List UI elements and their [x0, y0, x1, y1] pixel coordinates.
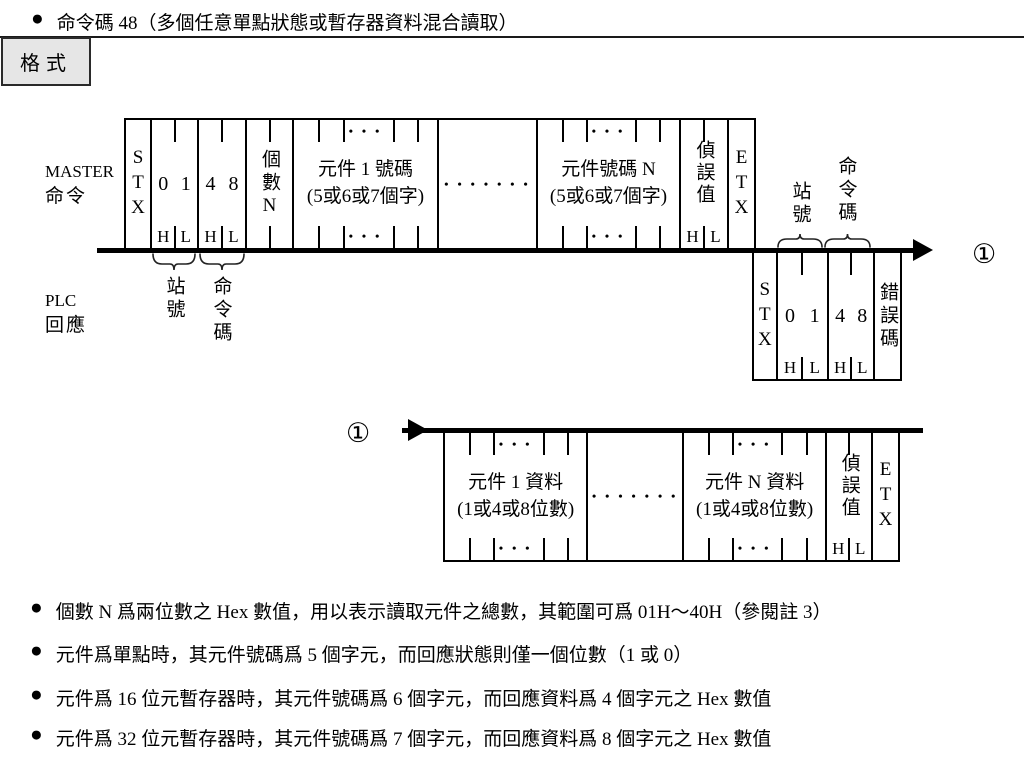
master-gap-cell: • • • • • • •: [439, 120, 538, 248]
ellipsis-dots: • • •: [294, 124, 437, 139]
cmd-hi: 4: [206, 173, 216, 196]
error-code-text: 錯誤碼: [878, 282, 897, 351]
continuation-marker-2: ①: [346, 420, 370, 447]
cmdcode-digits: 4 8: [199, 173, 245, 196]
station-hi: 0: [785, 305, 795, 328]
data-elementN-label: 元件 N 資料 (1或4或8位數): [696, 470, 813, 523]
l-label: L: [222, 227, 245, 247]
ellipsis-dots: • • •: [445, 541, 586, 556]
master-elementN-cell: • • • • • • 元件號碼 N (5或6或7個字): [538, 120, 681, 248]
response-data-frame: • • • • • • 元件 1 資料 (1或4或8位數) • • • • • …: [443, 433, 900, 562]
response-error-cell: 錯誤碼: [875, 253, 902, 379]
element1-title: 元件 1 號碼: [307, 157, 424, 184]
command-code-text: 命令碼: [837, 156, 856, 225]
page-title-text: 命令碼 48（多個任意單點狀態或暫存器資料混合讀取）: [57, 8, 518, 35]
tick-mark: [269, 226, 271, 248]
tick-mark: [801, 253, 803, 275]
command-code-label: 命令碼: [210, 276, 232, 345]
page-title: ● 命令碼 48（多個任意單點狀態或暫存器資料混合讀取）: [31, 8, 517, 35]
underbrace-icon: [152, 252, 196, 272]
ellipsis-dots: • • •: [445, 437, 586, 452]
bullet-icon: ●: [30, 724, 43, 745]
l-label: L: [802, 358, 827, 378]
note-row: ● 元件爲 16 位元暫存器時，其元件號碼爲 6 個字元，而回應資料爲 4 個字…: [30, 684, 771, 711]
command-label: 命令: [45, 184, 114, 210]
arrow-right-icon: [913, 239, 933, 261]
ellipsis-dots: • • •: [538, 229, 679, 244]
response-cmdcode-cell: 4 8 H L: [829, 253, 875, 379]
station-number-text: 站號: [791, 181, 810, 227]
data-element1-title: 元件 1 資料: [457, 470, 574, 497]
station-lo: 1: [810, 305, 820, 328]
master-element1-cell: • • • • • • 元件 1 號碼 (5或6或7個字): [294, 120, 439, 248]
format-tab: 格式: [1, 37, 91, 86]
note-row: ● 元件爲 32 位元暫存器時，其元件號碼爲 7 個字元，而回應資料爲 8 個字…: [30, 724, 771, 751]
cmd-hi: 4: [835, 305, 845, 328]
ellipsis-dots: • • •: [684, 437, 825, 452]
tick-mark: [221, 120, 223, 142]
response-station-cell: 0 1 H L: [778, 253, 829, 379]
ellipsis-dots: • • •: [684, 541, 825, 556]
note-row: ● 元件爲單點時，其元件號碼爲 5 個字元，而回應狀態則僅一個位數（1 或 0）: [30, 640, 692, 667]
bullet-icon: ●: [30, 597, 43, 618]
format-tab-label: 格式: [20, 47, 72, 76]
data-element1-label: 元件 1 資料 (1或4或8位數): [457, 470, 574, 523]
continuation-dots: • • • • • • •: [444, 177, 530, 192]
section-divider: [0, 36, 1024, 38]
stx-text: STX: [755, 279, 774, 354]
hl-row: H L: [681, 227, 727, 247]
data-element1-cell: • • • • • • 元件 1 資料 (1或4或8位數): [445, 433, 588, 560]
data-elementN-cell: • • • • • • 元件 N 資料 (1或4或8位數): [684, 433, 827, 560]
note-row: ● 個數 N 爲兩位數之 Hex 數值，用以表示讀取元件之總數，其範圍可爲 01…: [30, 597, 832, 624]
hl-row: H L: [827, 539, 871, 559]
bullet-icon: ●: [31, 8, 44, 29]
plc-response-label: PLC 回應: [45, 290, 87, 339]
plc-label: PLC: [45, 290, 87, 313]
h-label: H: [827, 539, 849, 559]
station-number-label: 站號: [789, 181, 811, 227]
master-etx-cell: ETX: [729, 120, 756, 248]
master-command-label: MASTER 命令: [45, 161, 114, 210]
response-stx-cell: STX: [754, 253, 778, 379]
cmd-lo: 8: [229, 173, 239, 196]
elementN-title: 元件號碼 N: [550, 157, 667, 184]
tick-mark: [848, 433, 850, 455]
master-stx-cell: STX: [126, 120, 152, 248]
overbrace-icon: [824, 233, 871, 249]
master-station-cell: 0 1 H L: [152, 120, 199, 248]
data-elementN-title: 元件 N 資料: [696, 470, 813, 497]
station-digits: 0 1: [152, 173, 197, 196]
underbrace-icon: [199, 252, 245, 272]
etx-text: ETX: [876, 459, 895, 534]
etx-text: ETX: [732, 147, 751, 222]
cmdcode-digits: 4 8: [829, 305, 873, 328]
data-elementN-subtitle: (1或4或8位數): [696, 497, 813, 524]
checksum-text: 偵誤值: [840, 453, 859, 519]
h-label: H: [152, 227, 175, 247]
continuation-dots: • • • • • • •: [592, 489, 678, 504]
ellipsis-dots: • • •: [294, 229, 437, 244]
hl-row: H L: [152, 227, 197, 247]
elementN-label: 元件號碼 N (5或6或7個字): [550, 157, 667, 210]
data-gap-cell: • • • • • • •: [588, 433, 684, 560]
checksum-text: 偵誤值: [695, 140, 714, 206]
l-label: L: [704, 227, 727, 247]
station-digits: 0 1: [778, 305, 827, 328]
data-etx-cell: ETX: [873, 433, 900, 560]
data-checksum-cell: 偵誤值 H L: [827, 433, 873, 560]
response-label: 回應: [45, 313, 87, 339]
note-text: 元件爲單點時，其元件號碼爲 5 個字元，而回應狀態則僅一個位數（1 或 0）: [56, 640, 693, 667]
station-hi: 0: [158, 173, 168, 196]
hl-row: H L: [199, 227, 245, 247]
hl-row: H L: [829, 358, 873, 378]
note-text: 元件爲 32 位元暫存器時，其元件號碼爲 7 個字元，而回應資料爲 8 個字元之…: [56, 724, 772, 751]
hl-row: H L: [778, 358, 827, 378]
elementN-subtitle: (5或6或7個字): [550, 184, 667, 211]
master-checksum-cell: 偵誤值 H L: [681, 120, 729, 248]
l-label: L: [849, 539, 871, 559]
plc-response-frame: STX 0 1 H L 4 8 H L: [752, 253, 902, 381]
h-label: H: [778, 358, 803, 378]
tick-mark: [703, 120, 705, 142]
master-command-frame: STX 0 1 H L 4 8 H L: [124, 118, 756, 248]
tick-mark: [269, 120, 271, 142]
page: ● 命令碼 48（多個任意單點狀態或暫存器資料混合讀取） 格式 MASTER 命…: [0, 0, 1024, 761]
count-text: 個數N: [260, 149, 279, 220]
ellipsis-dots: • • •: [538, 124, 679, 139]
arrow-right-icon: [408, 419, 428, 441]
station-lo: 1: [181, 173, 191, 196]
h-label: H: [829, 358, 851, 378]
command-code-label: 命令碼: [835, 156, 857, 225]
cmd-lo: 8: [857, 305, 867, 328]
station-number-label: 站號: [163, 276, 185, 322]
master-cmdcode-cell: 4 8 H L: [199, 120, 247, 248]
tick-mark: [850, 253, 852, 275]
data-element1-subtitle: (1或4或8位數): [457, 497, 574, 524]
command-code-text: 命令碼: [212, 276, 231, 345]
h-label: H: [681, 227, 704, 247]
note-text: 個數 N 爲兩位數之 Hex 數值，用以表示讀取元件之總數，其範圍可爲 01H～…: [56, 597, 832, 624]
note-text: 元件爲 16 位元暫存器時，其元件號碼爲 6 個字元，而回應資料爲 4 個字元之…: [56, 684, 772, 711]
master-label: MASTER: [45, 161, 114, 184]
l-label: L: [175, 227, 198, 247]
element1-label: 元件 1 號碼 (5或6或7個字): [307, 157, 424, 210]
continuation-marker-1: ①: [972, 241, 996, 268]
stx-text: STX: [129, 147, 148, 222]
overbrace-icon: [777, 233, 823, 249]
h-label: H: [199, 227, 222, 247]
l-label: L: [851, 358, 873, 378]
bullet-icon: ●: [30, 684, 43, 705]
bullet-icon: ●: [30, 640, 43, 661]
station-number-text: 站號: [165, 276, 184, 322]
master-count-cell: 個數N: [247, 120, 294, 248]
element1-subtitle: (5或6或7個字): [307, 184, 424, 211]
tick-mark: [174, 120, 176, 142]
